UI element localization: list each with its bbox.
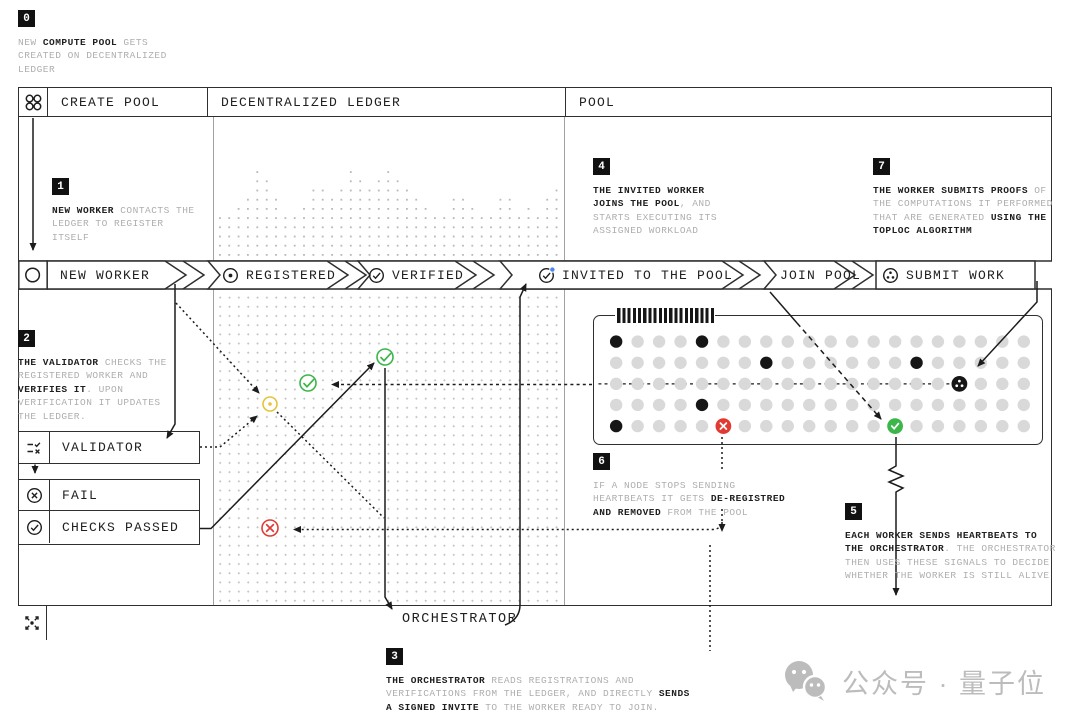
validator-label: VALIDATOR <box>62 440 143 455</box>
step-badge: 4 <box>593 158 610 175</box>
pool-node-dot <box>867 420 879 432</box>
pool-node-dot <box>953 335 965 347</box>
pool-node-dot <box>631 399 643 411</box>
watermark: 公众号 · 量子位 <box>782 660 1046 702</box>
pool-node-dot <box>889 357 901 369</box>
flow-label: JOIN POOL <box>780 268 861 283</box>
pool-node-dot <box>889 335 901 347</box>
step-badge: 0 <box>18 10 35 27</box>
proof-circle-icon <box>882 267 899 284</box>
pool-node-dot <box>631 357 643 369</box>
pool-node-dot <box>932 399 944 411</box>
check-circle-icon <box>19 511 50 542</box>
pool-node-dot <box>910 420 922 432</box>
pool-node-dot <box>803 378 815 390</box>
pool-node-dot <box>953 357 965 369</box>
flow-step-new-worker: NEW WORKER <box>60 261 150 289</box>
flow-step-invited: INVITED TO THE POOL <box>538 261 733 289</box>
pool-node-dot <box>996 399 1008 411</box>
pool-node-dot <box>610 420 622 432</box>
column-header-row: CREATE POOL DECENTRALIZED LEDGER POOL <box>18 87 1052 117</box>
pool-node-dot <box>696 357 708 369</box>
pool-node-dot <box>824 399 836 411</box>
pool-node-dot <box>674 399 686 411</box>
step-note-7: 7THE WORKER SUBMITS PROOFS OFTHE COMPUTA… <box>873 158 1053 238</box>
pool-node-dot <box>803 420 815 432</box>
pool-box <box>593 315 1043 445</box>
pool-node-dot <box>932 378 944 390</box>
pool-node-dot <box>867 378 879 390</box>
orchestrator-label: ORCHESTRATOR <box>402 612 517 627</box>
dot-circle-icon <box>222 267 239 284</box>
pool-node-dot <box>910 399 922 411</box>
pool-node-dot <box>910 335 922 347</box>
pool-node-dot <box>953 399 965 411</box>
pool-node-dot <box>803 357 815 369</box>
pool-node-dot <box>653 420 665 432</box>
pool-node-dot <box>653 357 665 369</box>
step-badge: 5 <box>845 503 862 520</box>
pool-node-dot <box>1018 378 1030 390</box>
pool-node-dot <box>739 357 751 369</box>
flow-label: VERIFIED <box>392 268 464 283</box>
compute-pool-diagram: CREATE POOL DECENTRALIZED LEDGER POOL NE… <box>0 0 1080 726</box>
pool-node-dot <box>653 378 665 390</box>
pool-node-dot <box>782 399 794 411</box>
flow-label: INVITED TO THE POOL <box>562 268 733 283</box>
pool-node-dot <box>717 357 729 369</box>
pool-node-dot <box>824 378 836 390</box>
pool-node-dot <box>610 378 622 390</box>
step-note-6: 6IF A NODE STOPS SENDINGHEARTBEATS IT GE… <box>593 453 785 519</box>
pool-node-dot <box>846 399 858 411</box>
pool-node-dot <box>867 399 879 411</box>
header-pool: POOL <box>579 95 615 110</box>
pool-node-dot <box>975 335 987 347</box>
x-circle-icon <box>19 480 50 510</box>
pool-node-dot <box>1018 399 1030 411</box>
pool-node-dot <box>696 420 708 432</box>
flow-step-verified: VERIFIED <box>368 261 464 289</box>
step-badge: 1 <box>52 178 69 195</box>
pool-node-dot <box>953 420 965 432</box>
validator-box: VALIDATOR <box>18 431 200 464</box>
pool-node-dot <box>910 378 922 390</box>
pool-node-dot <box>975 420 987 432</box>
ledger-dot-grid <box>214 291 564 605</box>
pool-node-dot <box>610 335 622 347</box>
pool-node-dot <box>996 335 1008 347</box>
pool-node-dot <box>932 420 944 432</box>
step-note-4: 4THE INVITED WORKERJOINS THE POOL, ANDST… <box>593 158 717 238</box>
pool-node-dot <box>932 357 944 369</box>
pool-node-dot <box>782 420 794 432</box>
pool-node-dot <box>782 357 794 369</box>
flow-step-registered: REGISTERED <box>222 261 336 289</box>
arrow-worker-to-validator <box>167 284 175 438</box>
pool-node-dot <box>610 357 622 369</box>
pool-node-dot <box>696 335 708 347</box>
pool-node-dot <box>631 378 643 390</box>
pool-node-dot <box>739 399 751 411</box>
pool-alive-node <box>887 418 903 434</box>
step-note-2: 2THE VALIDATOR CHECKS THEREGISTERED WORK… <box>18 330 167 423</box>
pool-node-dot <box>696 378 708 390</box>
pool-node-dot <box>739 420 751 432</box>
pool-node-dot <box>889 399 901 411</box>
scatter-icon <box>18 606 47 640</box>
pool-node-dot <box>803 335 815 347</box>
pool-proof-node <box>952 376 968 392</box>
pool-node-dot <box>653 335 665 347</box>
pool-node-dot <box>867 357 879 369</box>
pool-node-dot <box>975 378 987 390</box>
checklist-icon <box>19 432 50 463</box>
step-note-0: 0NEW COMPUTE POOL GETSCREATED ON DECENTR… <box>18 10 167 76</box>
watermark-text: 公众号 · 量子位 <box>842 662 1046 701</box>
validation-result-box: FAIL CHECKS PASSED <box>18 479 200 545</box>
pool-node-dot <box>996 378 1008 390</box>
wechat-icon <box>782 660 830 702</box>
step-note-5: 5EACH WORKER SENDS HEARTBEATS TOTHE ORCH… <box>845 503 1056 583</box>
pool-node-dot <box>739 378 751 390</box>
flow-label: REGISTERED <box>246 268 336 283</box>
pool-node-dot <box>803 399 815 411</box>
pool-node-dot <box>782 378 794 390</box>
header-decentralized-ledger: DECENTRALIZED LEDGER <box>221 95 401 110</box>
pool-node-dot <box>846 357 858 369</box>
pool-node-dot <box>674 335 686 347</box>
pool-node-dot <box>653 399 665 411</box>
pool-node-dot <box>1018 420 1030 432</box>
pool-node-dot <box>760 335 772 347</box>
pool-node-dot <box>696 399 708 411</box>
pool-node-dot <box>739 335 751 347</box>
pool-node-dot <box>932 335 944 347</box>
check-circle-icon <box>368 267 385 284</box>
flow-step-join-pool: JOIN POOL <box>780 261 861 289</box>
pool-node-dot <box>717 335 729 347</box>
flow-label: SUBMIT WORK <box>906 268 1005 283</box>
pool-removed-node <box>716 418 732 434</box>
pool-node-dot <box>824 335 836 347</box>
pool-node-dot <box>824 357 836 369</box>
pool-node-dot <box>674 357 686 369</box>
pool-node-dot <box>846 420 858 432</box>
pool-node-dot <box>975 357 987 369</box>
header-create-pool: CREATE POOL <box>61 95 160 110</box>
flow-label: NEW WORKER <box>60 268 150 283</box>
step-badge: 3 <box>386 648 403 665</box>
barcode-icon <box>612 307 718 324</box>
create-pool-icon <box>19 88 48 116</box>
pool-node-dot <box>782 335 794 347</box>
pool-node-dot <box>760 399 772 411</box>
pool-node-dot <box>1018 335 1030 347</box>
worker-origin-cell <box>19 261 47 289</box>
step-note-3: 3THE ORCHESTRATOR READS REGISTRATIONS AN… <box>386 648 690 714</box>
pool-node-dot <box>760 357 772 369</box>
pool-node-dot <box>1018 357 1030 369</box>
step-badge: 7 <box>873 158 890 175</box>
pool-node-dot <box>889 378 901 390</box>
pool-node-dot <box>975 399 987 411</box>
pool-node-dot <box>846 335 858 347</box>
checks-passed-row: CHECKS PASSED <box>19 511 199 542</box>
flow-step-submit-work: SUBMIT WORK <box>882 261 1005 289</box>
pool-node-dot <box>674 420 686 432</box>
pool-node-dot <box>760 420 772 432</box>
checks-passed-label: CHECKS PASSED <box>62 520 179 535</box>
pool-node-dot <box>610 399 622 411</box>
pool-node-dot <box>674 378 686 390</box>
pool-node-dot <box>824 420 836 432</box>
pool-node-dot <box>717 399 729 411</box>
pool-node-dot <box>846 378 858 390</box>
step-badge: 2 <box>18 330 35 347</box>
pool-node-dot <box>996 420 1008 432</box>
pool-node-dot <box>631 335 643 347</box>
step-badge: 6 <box>593 453 610 470</box>
check-circle-notification-icon <box>538 267 555 284</box>
fail-row: FAIL <box>19 480 199 511</box>
pool-node-dot <box>910 357 922 369</box>
pool-node-dot <box>717 378 729 390</box>
pool-node-dot <box>631 420 643 432</box>
pool-node-dot <box>760 378 772 390</box>
pool-node-dot <box>996 357 1008 369</box>
fail-label: FAIL <box>62 488 98 503</box>
pool-node-dot <box>867 335 879 347</box>
step-note-1: 1NEW WORKER CONTACTS THELEDGER TO REGIST… <box>52 178 195 244</box>
orchestrator-row <box>18 605 1052 640</box>
